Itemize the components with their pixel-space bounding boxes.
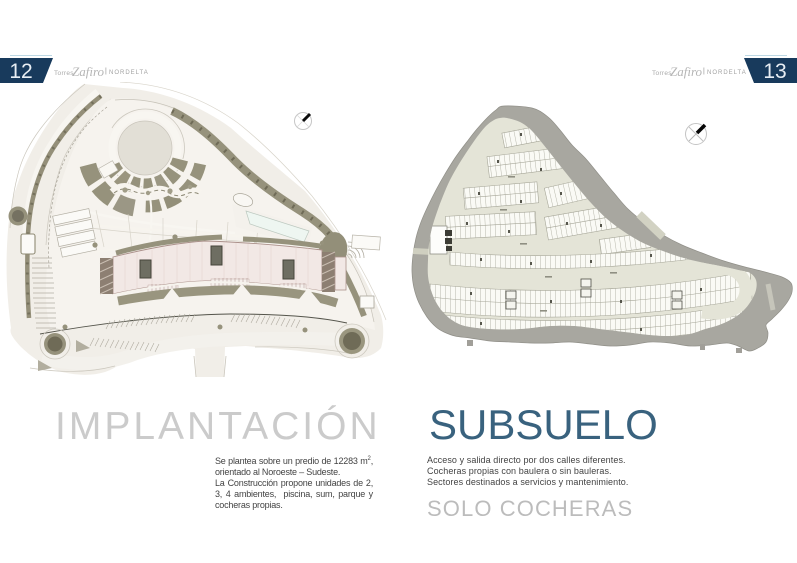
svg-text:13: 13 [763, 60, 786, 83]
svg-text:12: 12 [9, 60, 32, 83]
